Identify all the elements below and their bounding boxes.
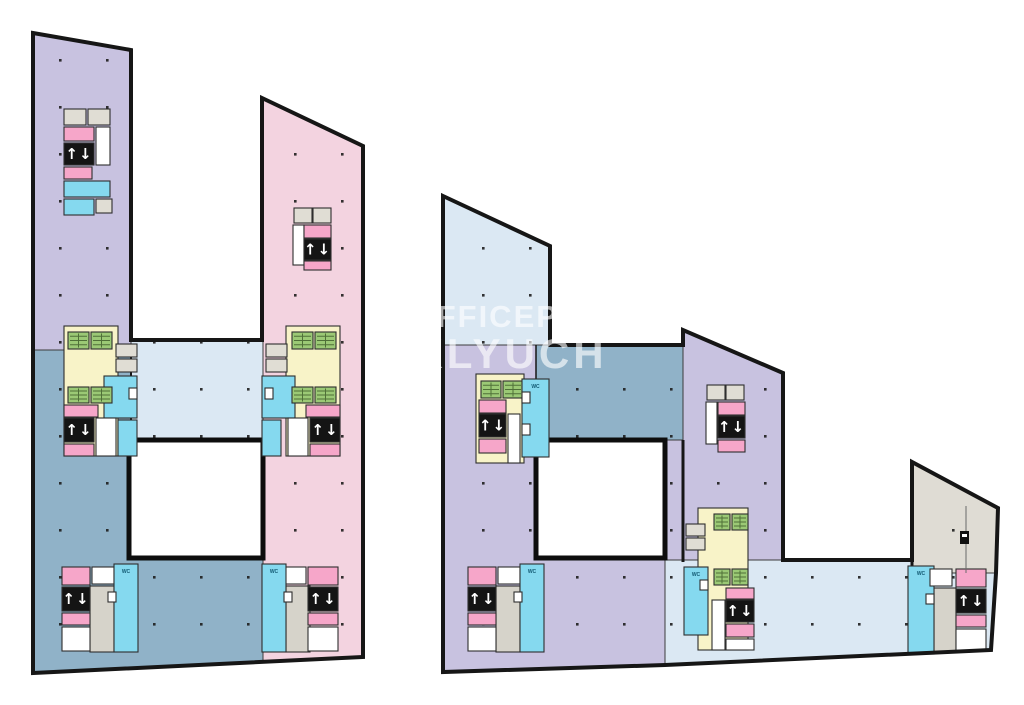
lobby-room (64, 127, 94, 141)
left-building-core-bottom-left: ↑↓WC (62, 564, 138, 652)
wc-label: WC (528, 569, 537, 575)
lobby-room (726, 624, 754, 637)
lobby-room (310, 444, 340, 456)
wc-label: WC (270, 569, 279, 575)
room (700, 580, 708, 590)
courtyard (129, 440, 263, 558)
lobby-room (306, 405, 340, 417)
right-building-core-bottom-left: ↑↓WC (468, 564, 544, 652)
room (926, 594, 934, 604)
room (265, 388, 273, 399)
room (468, 627, 496, 651)
floorplan-svg: ↑↓↑↓↑↓↑↓↑↓WC↑↓WC↑↓WCWC↑↓↑↓↑↓WCWC↑↓ (0, 0, 1024, 705)
lobby-room (726, 588, 754, 599)
room (930, 569, 952, 586)
service-room (88, 109, 110, 125)
elevator-arrows-icon: ↑↓ (65, 145, 92, 163)
room (96, 418, 116, 456)
elevator-arrows-icon: ↑↓ (311, 421, 338, 439)
left-building-core-pink-tower: ↑↓ (293, 208, 331, 270)
elevator-arrows-icon: ↑↓ (468, 590, 495, 608)
service-room (686, 538, 705, 550)
lobby-room (956, 615, 986, 627)
service-room (313, 208, 331, 223)
left-building: ↑↓↑↓↑↓↑↓↑↓WC↑↓WC (33, 33, 363, 673)
service-room (266, 359, 287, 372)
elevator-arrows-icon: ↑↓ (62, 590, 89, 608)
service-room (266, 344, 287, 357)
left-building-core-mid-right: ↑↓ (262, 326, 340, 456)
room (92, 567, 114, 584)
lobby-room (718, 402, 745, 415)
lobby-room (718, 440, 745, 452)
corridor (934, 588, 956, 652)
room (293, 225, 304, 265)
wc-room (262, 420, 281, 456)
room (96, 127, 110, 165)
right-building: ↑↓WCWC↑↓↑↓↑↓WCWC↑↓ (443, 196, 998, 672)
right-building-core-center: WC↑↓ (684, 508, 754, 650)
left-building-core-mid-left: ↑↓ (64, 326, 137, 456)
lobby-room (304, 261, 331, 270)
wc-room (64, 199, 94, 215)
room (498, 567, 520, 584)
courtyard (536, 440, 665, 558)
wc-label: WC (692, 572, 701, 578)
lobby-room (308, 613, 338, 625)
room (508, 414, 520, 463)
room (712, 600, 725, 650)
elevator-arrows-icon: ↑↓ (957, 592, 984, 610)
elevator-arrows-icon: ↑↓ (479, 417, 506, 435)
room (514, 592, 522, 602)
service-room (96, 199, 112, 213)
left-building-core-top-left: ↑↓ (64, 109, 112, 215)
room (62, 627, 90, 651)
wc-room (520, 564, 544, 652)
room (129, 388, 137, 399)
wc-room (114, 564, 138, 652)
elevator-arrows-icon: ↑↓ (309, 590, 336, 608)
room (726, 639, 754, 650)
elevator-arrows-icon: ↑↓ (304, 241, 331, 259)
service-room (726, 385, 744, 400)
right-building-core-bottom-right: WC↑↓ (908, 566, 986, 654)
service-room (707, 385, 725, 400)
door-icon-slit (962, 534, 967, 537)
lobby-room (64, 167, 92, 179)
room (284, 567, 306, 584)
service-room (686, 524, 705, 536)
lobby-room (62, 567, 90, 585)
room (108, 592, 116, 602)
lobby-room (64, 405, 98, 417)
service-room (116, 359, 137, 372)
lobby-room (64, 444, 94, 456)
right-building-core-mid-left: ↑↓WC (476, 374, 549, 463)
lobby-room (468, 567, 496, 585)
room (706, 402, 717, 444)
right-building-core-lavender-tower: ↑↓ (706, 385, 745, 452)
service-room (116, 344, 137, 357)
wc-label: WC (122, 569, 131, 575)
lobby-room (956, 569, 986, 587)
wc-room (522, 379, 549, 457)
left-building-core-bottom-right: ↑↓WC (262, 564, 338, 652)
lobby-room (62, 613, 90, 625)
wc-room (64, 181, 110, 197)
room (522, 424, 530, 435)
room (284, 592, 292, 602)
wc-room (262, 564, 286, 652)
lobby-room (479, 439, 506, 453)
elevator-arrows-icon: ↑↓ (726, 602, 753, 620)
lobby-room (479, 400, 506, 413)
lobby-room (468, 613, 496, 625)
elevator-arrows-icon: ↑↓ (718, 418, 745, 436)
room (308, 627, 338, 651)
lobby-room (304, 225, 331, 238)
room (288, 418, 308, 456)
wc-room (118, 420, 137, 456)
floorplan-canvas: ↑↓↑↓↑↓↑↓↑↓WC↑↓WC↑↓WCWC↑↓↑↓↑↓WCWC↑↓ OFFIC… (0, 0, 1024, 705)
elevator-arrows-icon: ↑↓ (65, 421, 92, 439)
door-icon (960, 531, 969, 544)
wc-label: WC (531, 384, 540, 390)
room (522, 392, 530, 403)
wc-label: WC (917, 571, 926, 577)
lobby-room (308, 567, 338, 585)
room (956, 629, 986, 651)
service-room (64, 109, 86, 125)
service-room (294, 208, 312, 223)
